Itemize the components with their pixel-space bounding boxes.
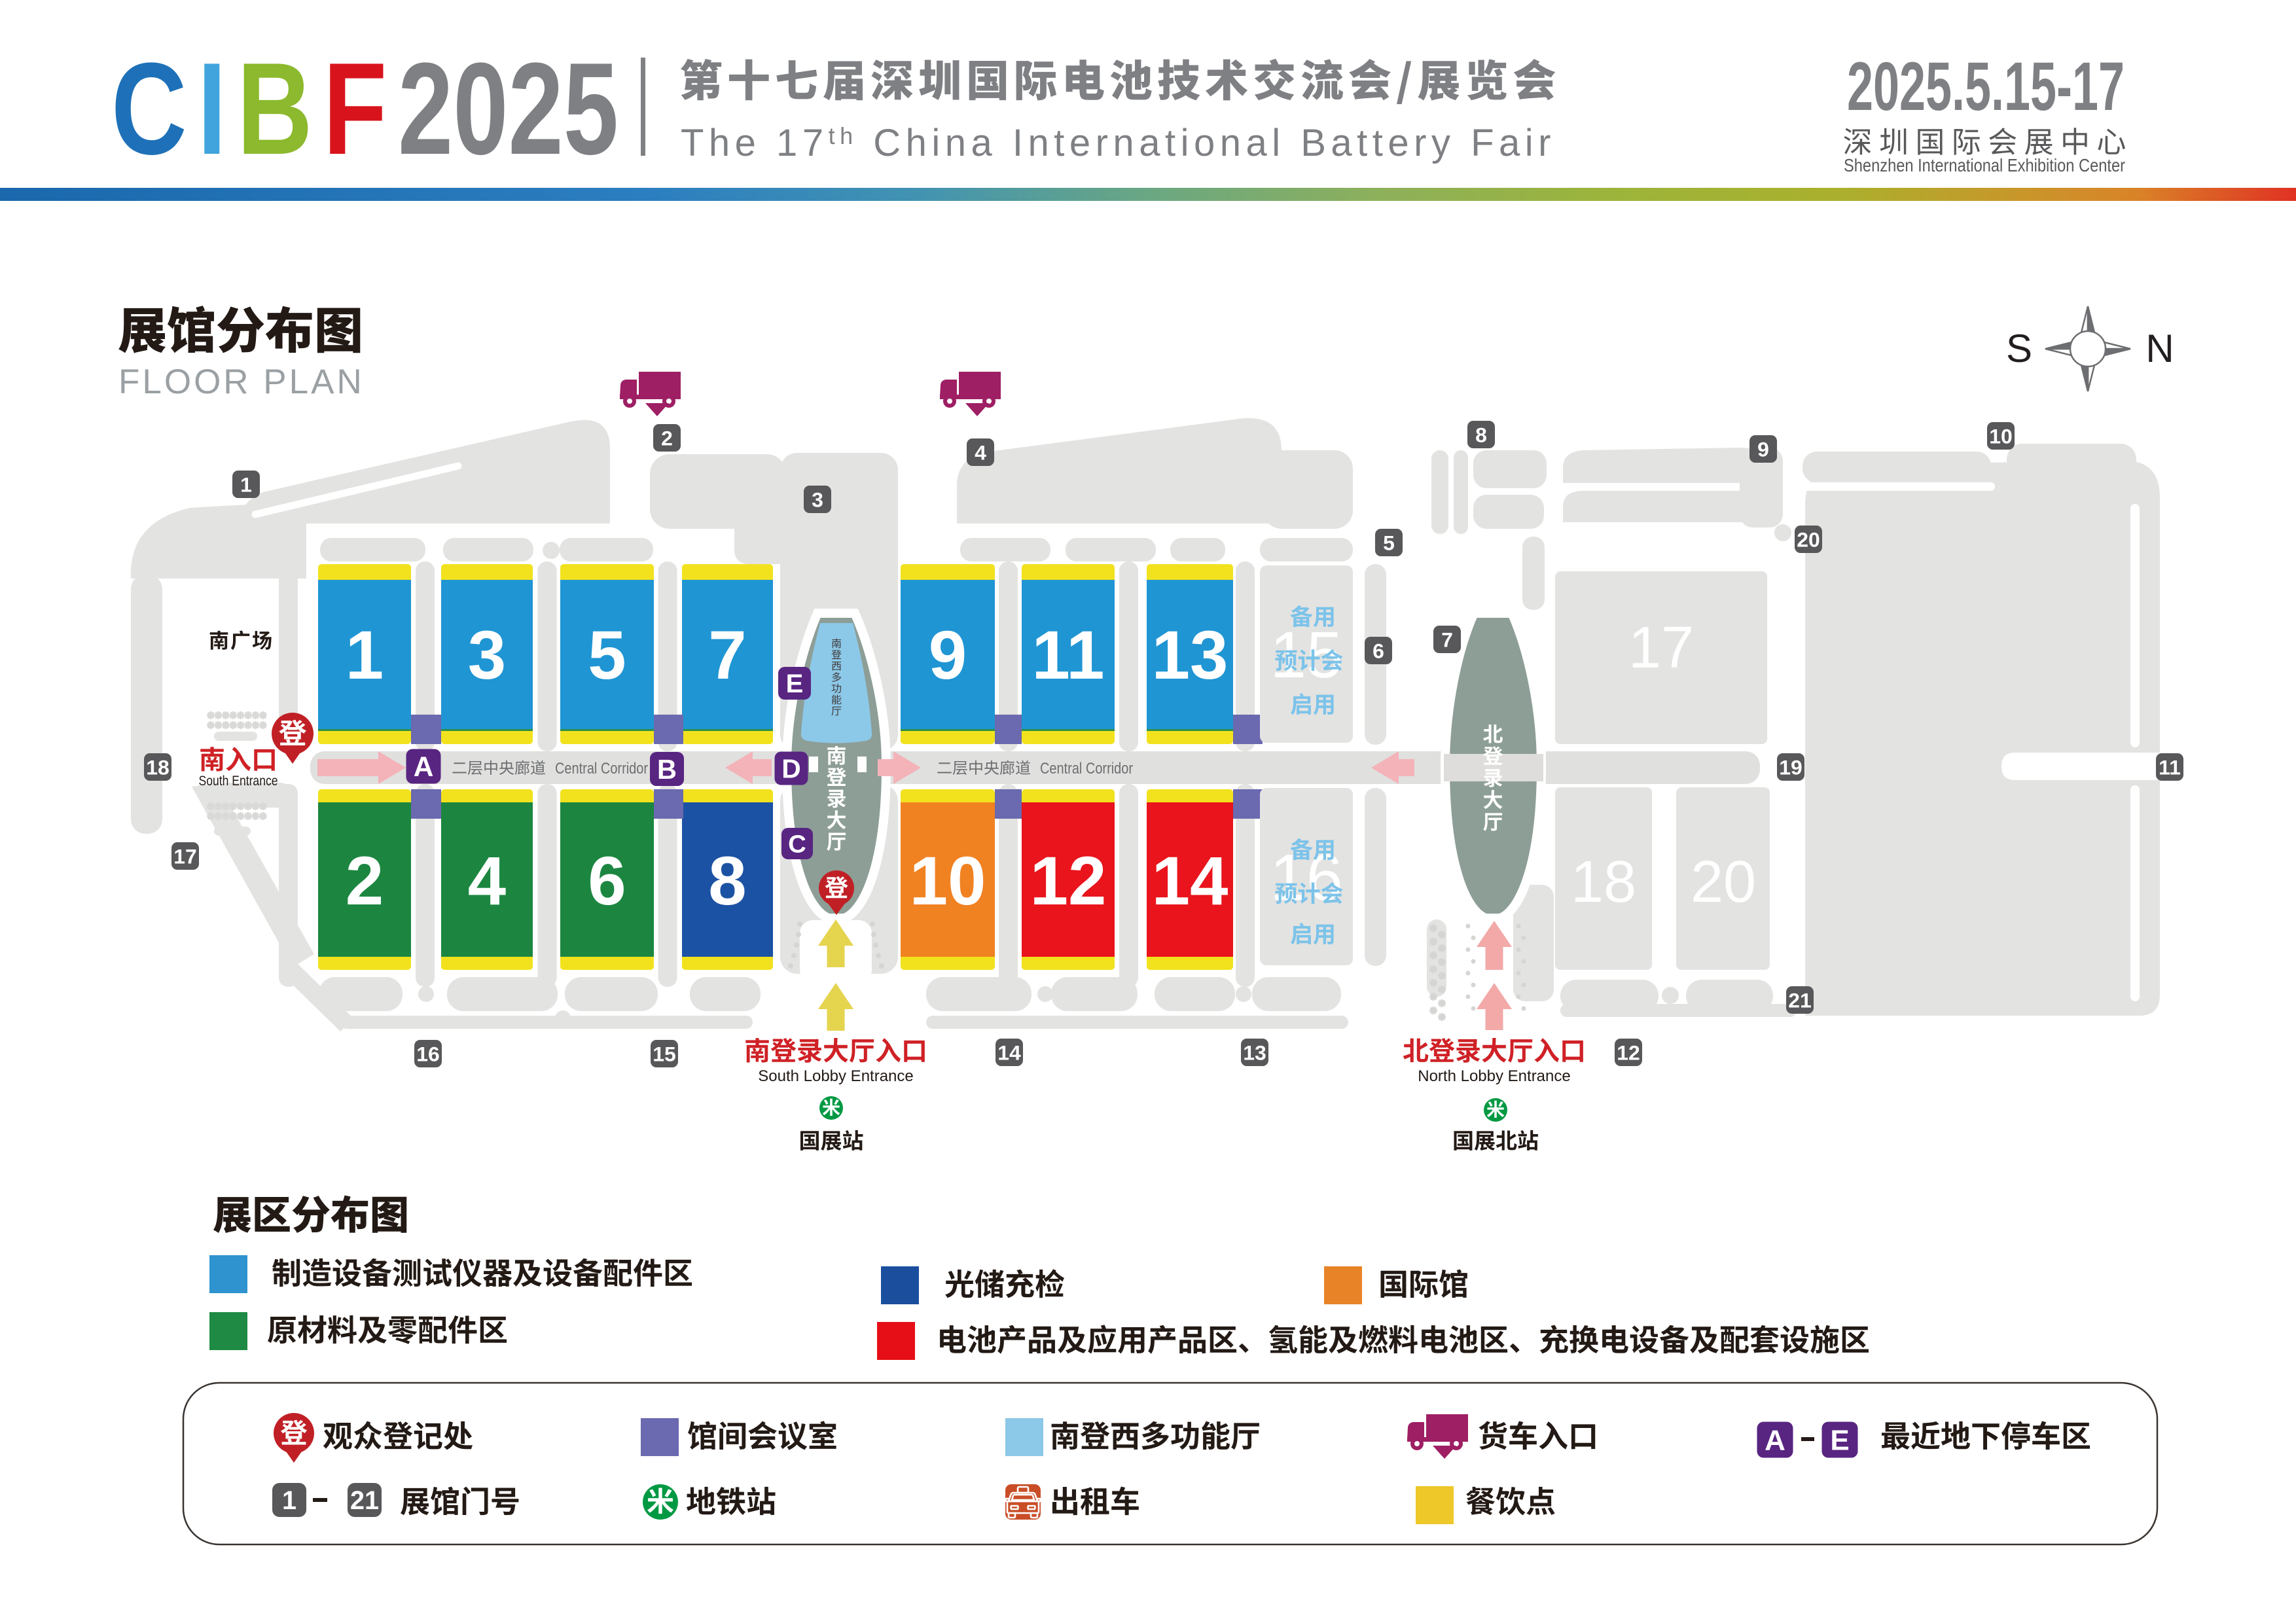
svg-text:18: 18 [146,756,170,779]
svg-text:14: 14 [997,1041,1021,1065]
svg-text:5: 5 [588,617,626,694]
svg-text:14: 14 [1152,843,1229,919]
svg-text:S: S [2006,327,2032,370]
svg-text:11: 11 [1032,617,1105,694]
svg-text:13: 13 [1152,617,1229,694]
svg-text:CIBF: CIBF [111,36,397,182]
svg-text:13: 13 [1243,1041,1266,1065]
svg-text:20: 20 [1797,528,1820,552]
svg-text:A: A [1765,1425,1785,1457]
svg-text:17: 17 [173,845,197,868]
svg-text:16: 16 [416,1043,440,1066]
svg-text:1: 1 [240,473,252,497]
svg-text:South Lobby Entrance: South Lobby Entrance [758,1067,914,1085]
svg-text:E: E [1830,1425,1849,1457]
svg-text:Shenzhen International Exhibit: Shenzhen International Exhibition Center [1844,155,2125,175]
svg-text:10: 10 [1989,425,2013,448]
svg-text:Central Corridor: Central Corridor [1040,760,1133,777]
svg-text:2: 2 [346,843,384,919]
svg-text:5: 5 [1383,531,1395,555]
svg-text:Central Corridor: Central Corridor [555,760,648,777]
svg-text:18: 18 [1571,849,1636,915]
svg-text:21: 21 [1788,989,1812,1012]
svg-text:1: 1 [282,1486,296,1515]
svg-text:10: 10 [910,843,986,919]
svg-text:The 17th China International B: The 17th China International Battery Fai… [681,122,1556,164]
svg-text:21: 21 [350,1486,379,1515]
svg-text:FLOOR PLAN: FLOOR PLAN [118,363,365,401]
svg-text:8: 8 [1475,423,1487,447]
svg-text:B: B [657,754,677,785]
svg-text:D: D [781,754,800,784]
svg-text:North Lobby Entrance: North Lobby Entrance [1418,1067,1570,1085]
svg-text:2025.5.15-17: 2025.5.15-17 [1847,48,2125,125]
svg-text:17: 17 [1628,615,1694,681]
svg-text:7: 7 [1441,628,1453,652]
svg-text:12: 12 [1030,843,1107,919]
svg-text:12: 12 [1617,1041,1640,1065]
svg-text:8: 8 [708,843,746,919]
svg-text:4: 4 [468,843,506,919]
svg-text:3: 3 [468,617,506,694]
svg-text:6: 6 [1372,639,1384,663]
svg-text:19: 19 [1779,756,1803,779]
svg-text:11: 11 [2159,756,2181,779]
svg-text:1: 1 [346,617,384,694]
svg-text:9: 9 [1757,438,1769,461]
svg-text:3: 3 [812,488,823,512]
svg-text:2: 2 [661,427,673,450]
svg-text:9: 9 [929,617,967,694]
svg-text:4: 4 [975,441,986,465]
svg-text:2025: 2025 [398,36,619,182]
svg-text:A: A [414,751,434,782]
svg-text:N: N [2145,327,2174,370]
svg-text:6: 6 [588,843,626,919]
svg-text:7: 7 [708,617,746,694]
svg-text:20: 20 [1691,849,1756,915]
svg-text:C: C [788,830,806,859]
svg-text:E: E [786,669,804,698]
svg-text:South Entrance: South Entrance [199,774,278,789]
svg-text:15: 15 [653,1043,676,1066]
